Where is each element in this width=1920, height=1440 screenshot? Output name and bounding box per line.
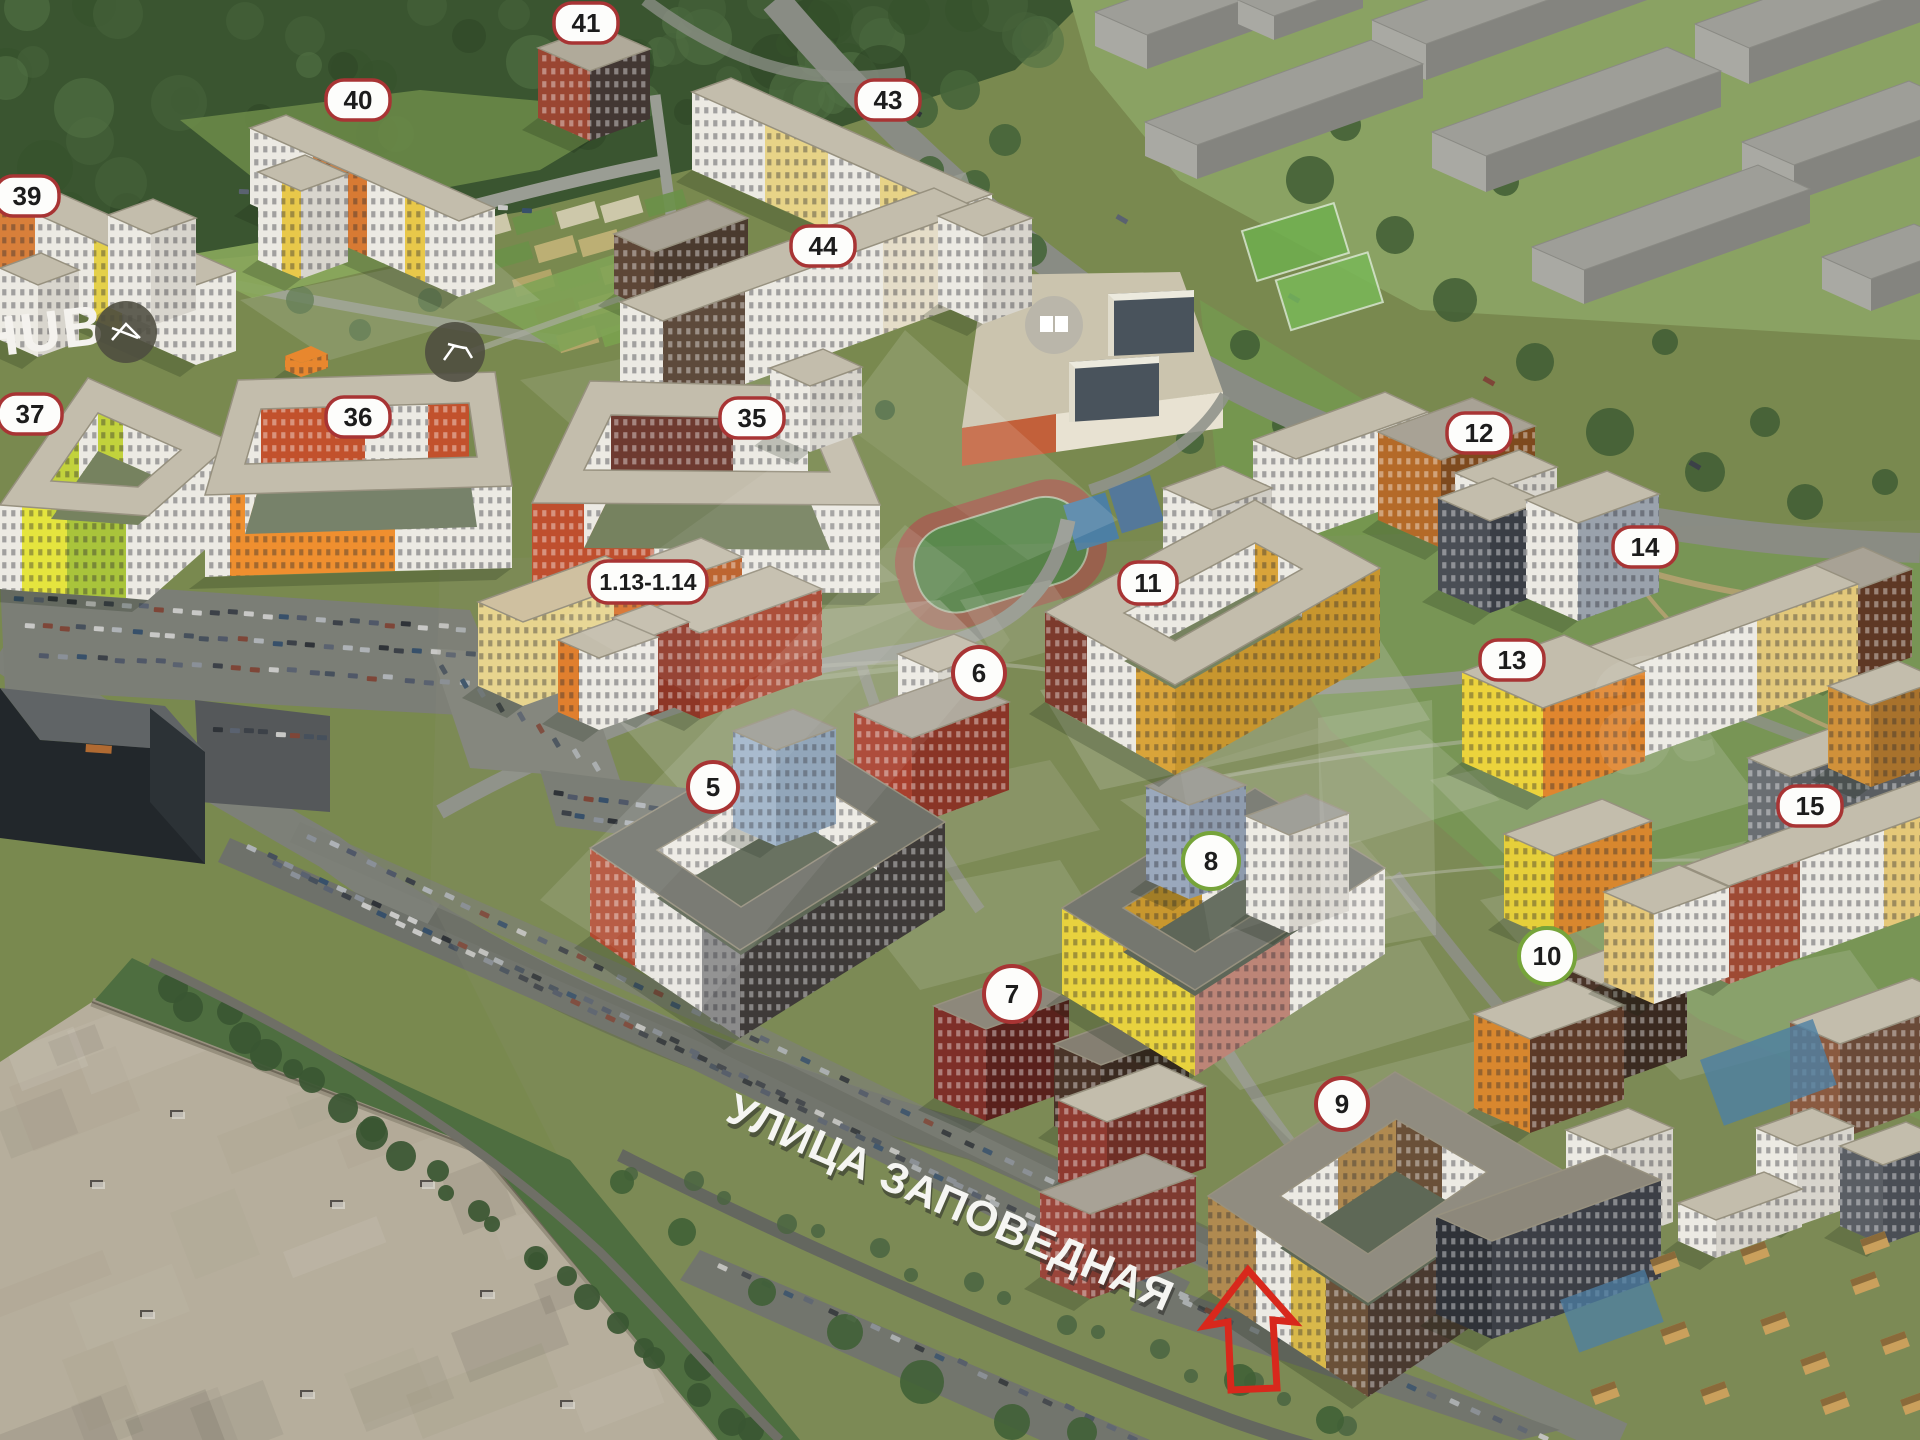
svg-text:10: 10 xyxy=(1533,941,1562,971)
svg-text:5: 5 xyxy=(706,772,720,802)
svg-text:15: 15 xyxy=(1796,791,1825,821)
svg-text:44: 44 xyxy=(809,231,838,261)
svg-text:40: 40 xyxy=(344,85,373,115)
svg-text:11: 11 xyxy=(1134,568,1162,598)
svg-text:12: 12 xyxy=(1465,418,1494,448)
svg-text:9: 9 xyxy=(1335,1089,1349,1119)
svg-text:1.13-1.14: 1.13-1.14 xyxy=(599,569,696,595)
svg-text:7: 7 xyxy=(1005,979,1019,1009)
svg-text:6: 6 xyxy=(972,658,986,688)
svg-text:35: 35 xyxy=(738,403,767,433)
svg-text:13: 13 xyxy=(1498,645,1527,675)
svg-text:43: 43 xyxy=(874,85,903,115)
svg-text:37: 37 xyxy=(16,399,45,429)
svg-text:8: 8 xyxy=(1204,846,1218,876)
svg-text:14: 14 xyxy=(1631,532,1660,562)
svg-text:41: 41 xyxy=(572,8,601,38)
svg-text:36: 36 xyxy=(344,402,373,432)
svg-text:39: 39 xyxy=(13,181,42,211)
